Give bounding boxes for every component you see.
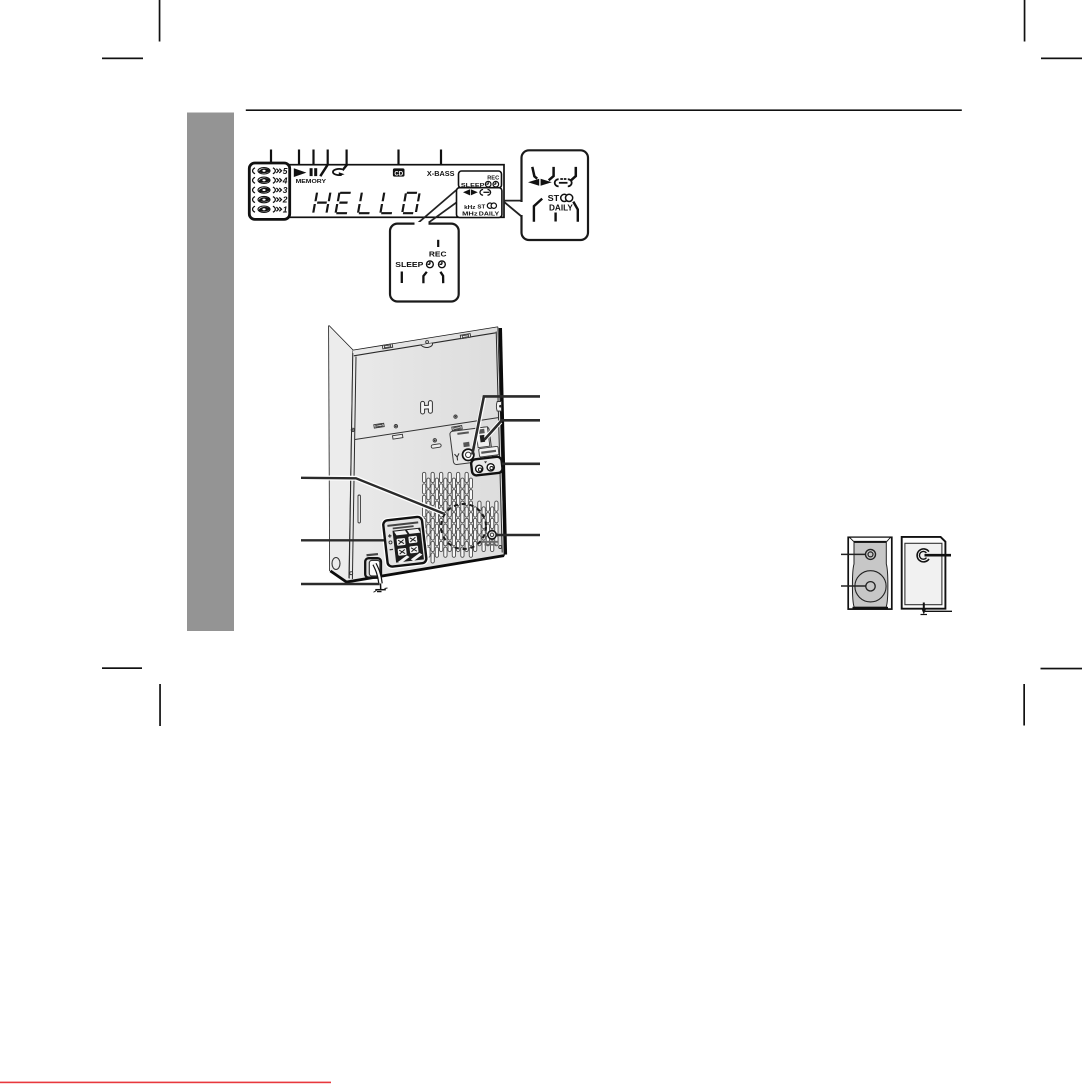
svg-text:ST: ST bbox=[477, 204, 486, 210]
svg-text:REC: REC bbox=[487, 175, 500, 181]
svg-text:2: 2 bbox=[282, 195, 288, 205]
svg-text:DAILY: DAILY bbox=[479, 212, 500, 218]
svg-text:3: 3 bbox=[283, 185, 288, 195]
svg-text:kHz: kHz bbox=[464, 205, 476, 211]
svg-text:CD: CD bbox=[394, 170, 403, 177]
svg-text:MEMORY: MEMORY bbox=[296, 179, 327, 185]
svg-text:ST: ST bbox=[548, 194, 560, 203]
svg-text:5: 5 bbox=[283, 166, 288, 176]
svg-text:4: 4 bbox=[282, 175, 288, 185]
svg-text:SLEEP: SLEEP bbox=[395, 260, 423, 269]
svg-text:MHz: MHz bbox=[462, 212, 478, 218]
svg-text:X-BASS: X-BASS bbox=[427, 169, 455, 178]
svg-text:DAILY: DAILY bbox=[549, 204, 573, 213]
svg-text:REC: REC bbox=[429, 249, 447, 258]
svg-text:1: 1 bbox=[283, 204, 288, 214]
